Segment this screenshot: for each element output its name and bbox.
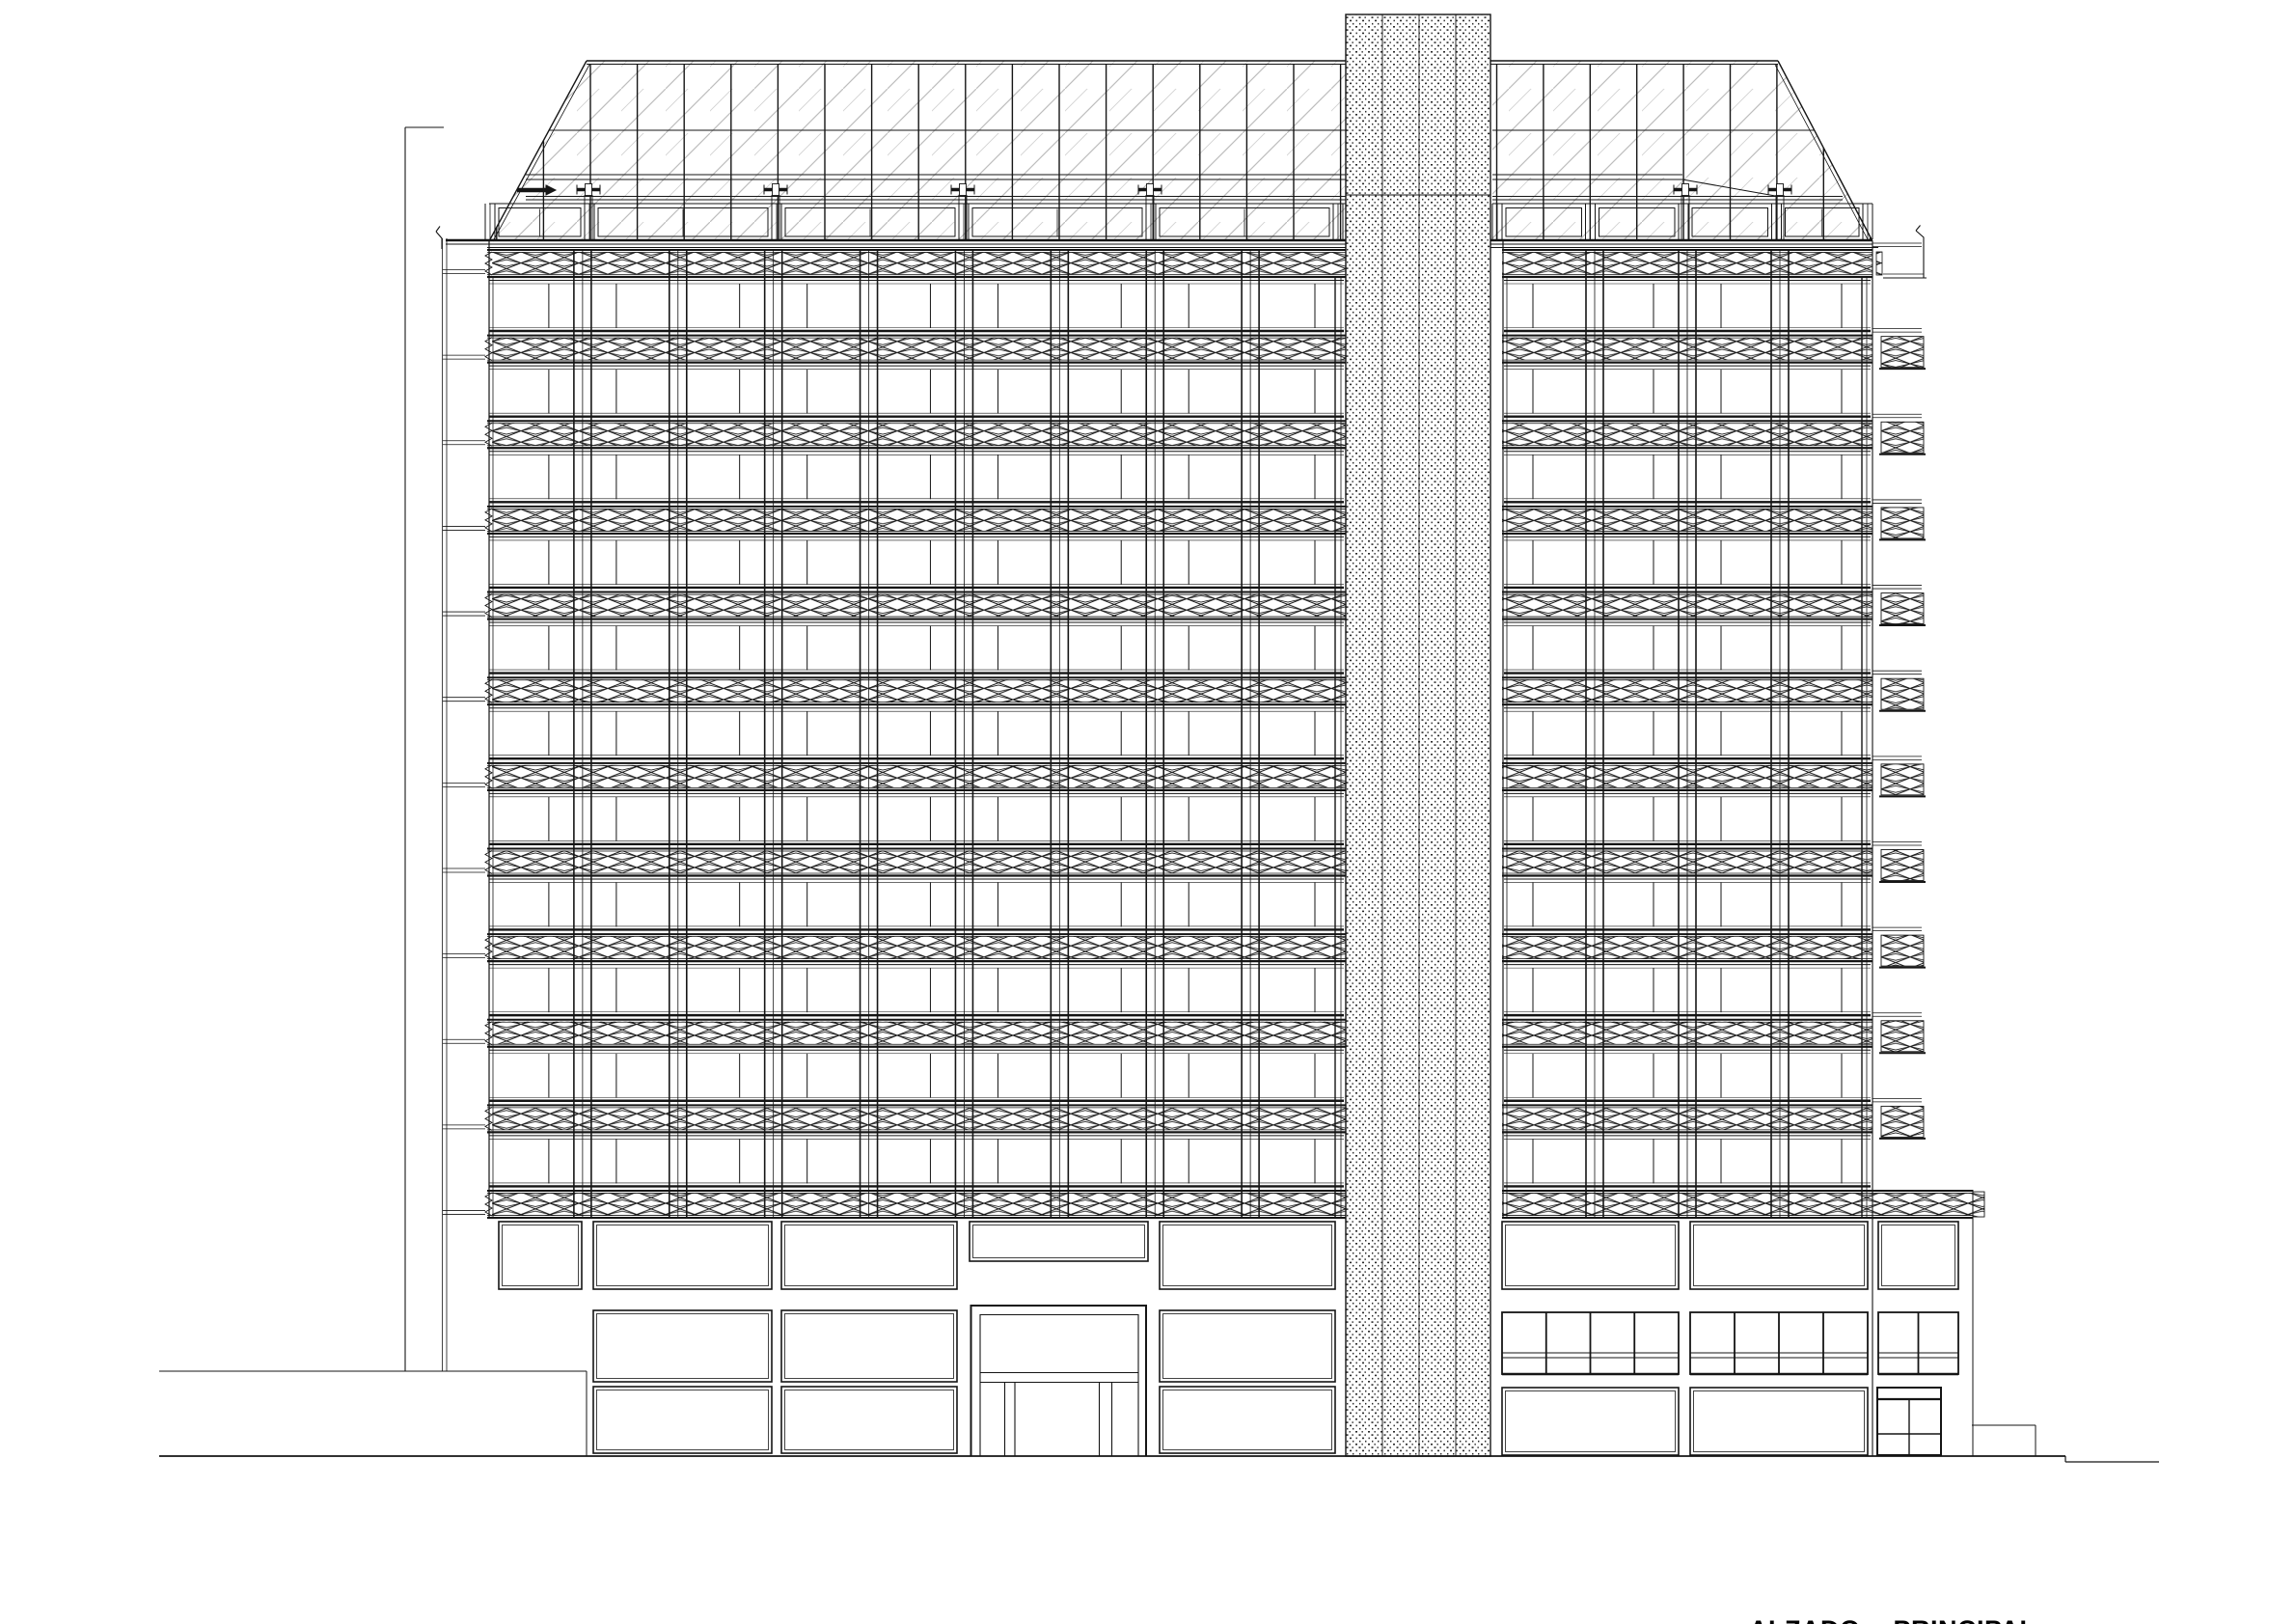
elevation-drawing-canvas bbox=[0, 0, 2296, 1624]
main-entrance bbox=[970, 1305, 1148, 1456]
roof-pergola bbox=[489, 61, 1872, 241]
typical-window-rows bbox=[489, 281, 1871, 1187]
elevator-tower bbox=[1346, 14, 1490, 1456]
drawing-caption: ALZADO PRINCIPAL AVDA. VENEZUELA bbox=[1749, 1555, 2036, 1624]
spandrel-bands bbox=[443, 243, 1984, 1456]
mullion-shafts bbox=[489, 241, 1867, 1219]
left-mast bbox=[405, 127, 447, 1371]
ground-floors bbox=[499, 1222, 1958, 1455]
eaves-slab bbox=[446, 240, 1878, 248]
elevation-sheet: ALZADO PRINCIPAL AVDA. VENEZUELA bbox=[0, 0, 2296, 1624]
caption-line-1: ALZADO PRINCIPAL bbox=[1749, 1615, 2036, 1624]
